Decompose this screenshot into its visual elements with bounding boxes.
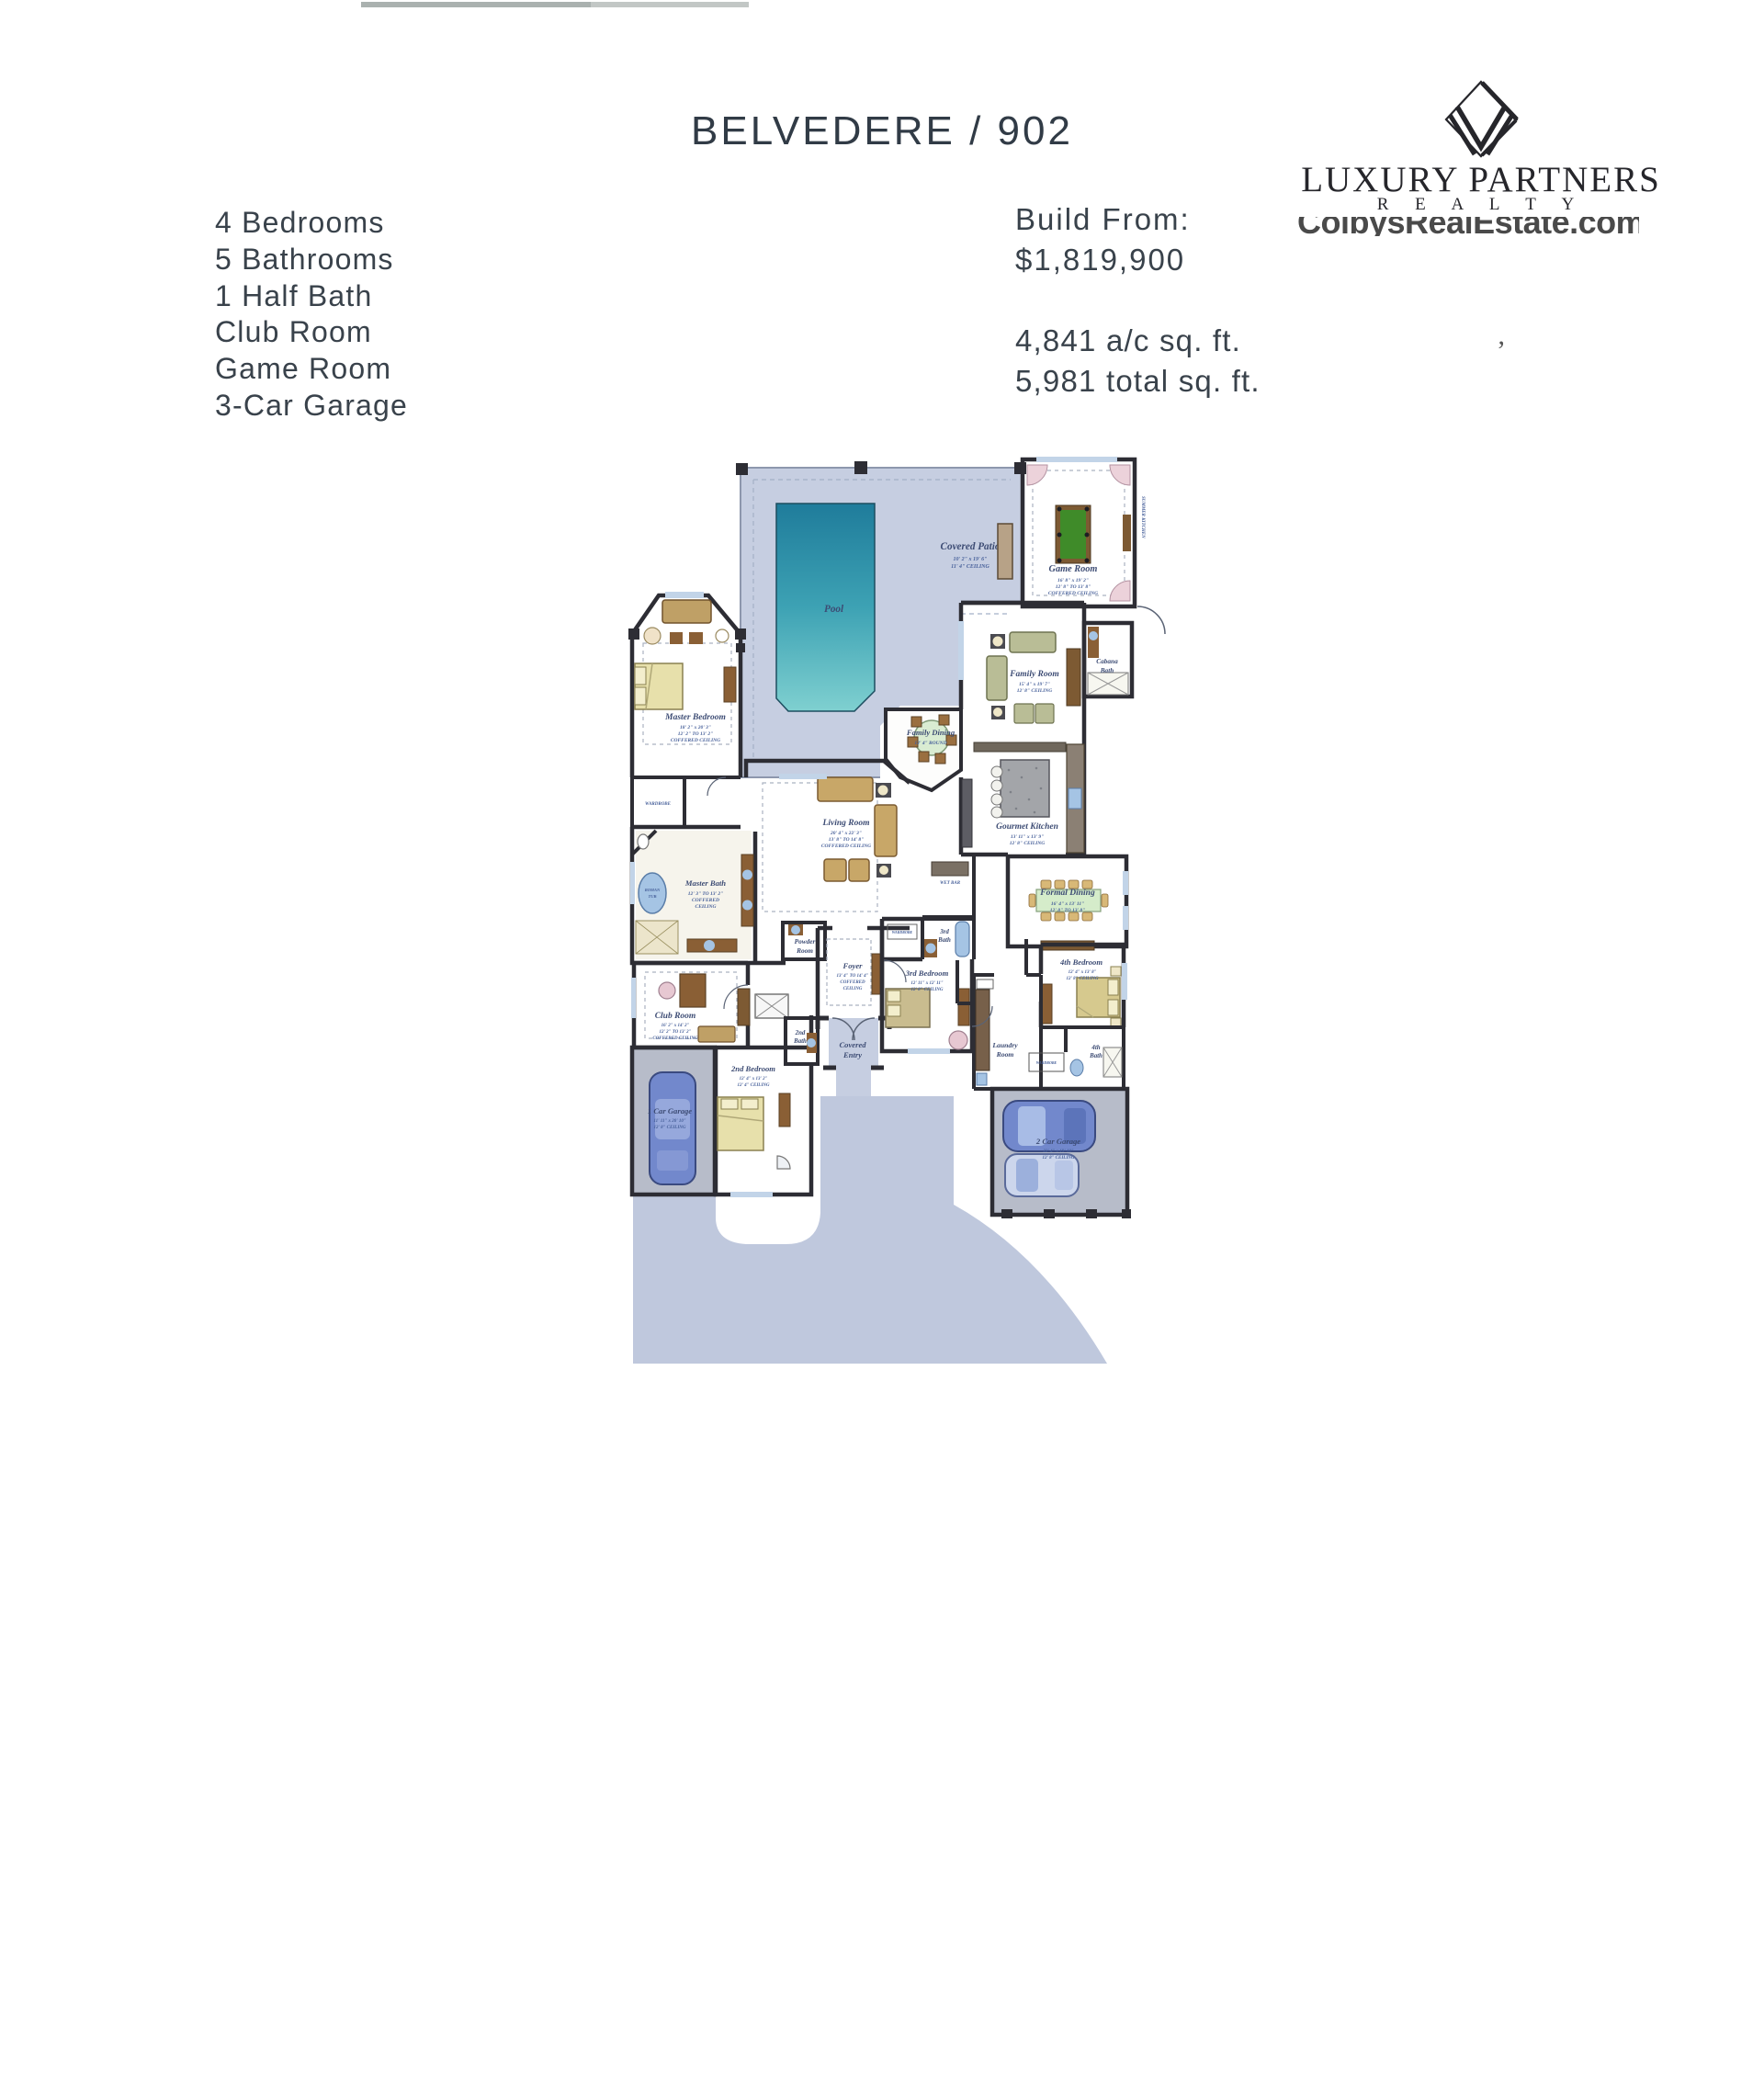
svg-text:16' 2" x 14' 2": 16' 2" x 14' 2" (661, 1024, 690, 1028)
svg-text:2 Car Garage: 2 Car Garage (1035, 1137, 1080, 1146)
svg-text:12' 4" ROUND: 12' 4" ROUND (914, 741, 946, 746)
svg-text:12' 8" CEILING: 12' 8" CEILING (1066, 977, 1098, 981)
svg-text:Master Bedroom: Master Bedroom (664, 713, 726, 722)
svg-text:15' 4" x 19' 7": 15' 4" x 19' 7" (1019, 682, 1050, 687)
svg-text:Club Room: Club Room (655, 1012, 696, 1021)
svg-text:Entry: Entry (842, 1050, 862, 1059)
svg-text:2nd Bedroom: 2nd Bedroom (730, 1064, 775, 1073)
svg-text:COFFERED: COFFERED (692, 898, 719, 903)
svg-text:12' 4" CEILING: 12' 4" CEILING (737, 1083, 769, 1088)
svg-text:Bath: Bath (793, 1038, 807, 1045)
svg-text:Laundry: Laundry (991, 1041, 1018, 1049)
svg-text:WET BAR: WET BAR (940, 881, 961, 886)
svg-text:ROMAN: ROMAN (645, 888, 661, 892)
svg-text:2nd: 2nd (795, 1030, 806, 1036)
svg-text:1 Car Garage: 1 Car Garage (648, 1106, 692, 1115)
svg-text:SUMMER KITCHEN: SUMMER KITCHEN (1140, 496, 1145, 538)
svg-text:CEILING: CEILING (843, 987, 863, 991)
svg-text:12' 8" TO 13' 8": 12' 8" TO 13' 8" (1056, 584, 1091, 590)
svg-text:12' 2" TO 13' 2": 12' 2" TO 13' 2" (660, 1030, 692, 1035)
svg-text:Foyer: Foyer (842, 961, 863, 970)
svg-text:12' 8" TO 13' 8": 12' 8" TO 13' 8" (1050, 908, 1085, 913)
svg-text:16' 8" x 19' 2": 16' 8" x 19' 2" (1057, 578, 1089, 583)
svg-text:CEILING: CEILING (695, 904, 717, 910)
svg-text:WARDROBE: WARDROBE (645, 802, 672, 807)
svg-text:TUB: TUB (649, 894, 657, 899)
svg-text:Formal Dining: Formal Dining (1039, 889, 1095, 898)
svg-text:COFFERED CEILING: COFFERED CEILING (821, 844, 871, 849)
svg-text:Pool: Pool (824, 604, 844, 615)
svg-text:WARDROBE: WARDROBE (892, 930, 913, 934)
svg-text:12' 4" x 13' 8": 12' 4" x 13' 8" (1069, 970, 1097, 975)
svg-text:WARDROBE: WARDROBE (1036, 1060, 1057, 1065)
svg-text:Gourmet Kitchen: Gourmet Kitchen (996, 822, 1058, 832)
svg-text:16' 4" x 13' 11": 16' 4" x 13' 11" (1051, 901, 1084, 907)
svg-text:Cabana: Cabana (1096, 657, 1118, 665)
svg-text:COFFERED CEILING: COFFERED CEILING (671, 738, 720, 743)
svg-text:13' 4" TO 14' 4": 13' 4" TO 14' 4" (837, 974, 869, 979)
svg-text:Covered: Covered (839, 1040, 866, 1049)
svg-text:12' 8" CEILING: 12' 8" CEILING (910, 988, 943, 992)
svg-text:12' 8" CEILING: 12' 8" CEILING (1017, 688, 1053, 694)
svg-text:22' 4" x 19' 10": 22' 4" x 19' 10" (1042, 1149, 1074, 1154)
svg-text:Room: Room (996, 1050, 1014, 1059)
svg-text:3rd: 3rd (939, 929, 949, 935)
svg-text:12' 4" x 13' 2": 12' 4" x 13' 2" (740, 1077, 768, 1081)
svg-text:Room: Room (796, 946, 813, 955)
svg-text:COFFERED: COFFERED (840, 980, 865, 985)
svg-text:12' 8" CEILING: 12' 8" CEILING (1010, 841, 1046, 846)
svg-text:12' 3" TO 13' 2": 12' 3" TO 13' 2" (688, 891, 723, 897)
svg-text:11' 11" x 20' 10": 11' 11" x 20' 10" (653, 1119, 686, 1124)
svg-text:Family Dining: Family Dining (906, 728, 955, 737)
svg-text:Powder: Powder (795, 937, 816, 946)
svg-text:12' 8" CEILING: 12' 8" CEILING (653, 1126, 685, 1130)
svg-text:4th: 4th (1091, 1045, 1100, 1051)
svg-text:10' 2" x 19' 6": 10' 2" x 19' 6" (954, 557, 988, 562)
svg-text:3rd Bedroom: 3rd Bedroom (905, 968, 949, 978)
svg-text:12' 11" x 12' 11": 12' 11" x 12' 11" (910, 981, 944, 986)
svg-text:11' 4" CEILING: 11' 4" CEILING (951, 564, 989, 570)
svg-text:Bath: Bath (1089, 1053, 1102, 1059)
svg-text:Covered Patio: Covered Patio (941, 541, 1001, 552)
svg-text:Bath: Bath (937, 937, 951, 944)
svg-text:COFFERED CEILING: COFFERED CEILING (652, 1036, 698, 1041)
svg-text:18' 2" x 20' 3": 18' 2" x 20' 3" (680, 725, 711, 730)
svg-text:Game Room: Game Room (1049, 564, 1098, 574)
svg-text:4th Bedroom: 4th Bedroom (1059, 957, 1102, 967)
svg-text:12' 2" TO 13' 2": 12' 2" TO 13' 2" (678, 731, 713, 737)
svg-text:Living Room: Living Room (822, 819, 870, 828)
svg-text:13' 8" TO 14' 8": 13' 8" TO 14' 8" (829, 837, 864, 843)
svg-text:13' 11" x 13' 9": 13' 11" x 13' 9" (1011, 834, 1044, 840)
svg-text:Master Bath: Master Bath (684, 878, 726, 888)
svg-text:20' 4" x 22' 3": 20' 4" x 22' 3" (830, 831, 862, 836)
svg-text:COFFERED CEILING: COFFERED CEILING (1048, 591, 1098, 596)
svg-text:Family Room: Family Room (1009, 670, 1059, 679)
svg-text:Bath: Bath (1100, 666, 1114, 674)
svg-text:12' 8" CEILING: 12' 8" CEILING (1042, 1156, 1074, 1161)
